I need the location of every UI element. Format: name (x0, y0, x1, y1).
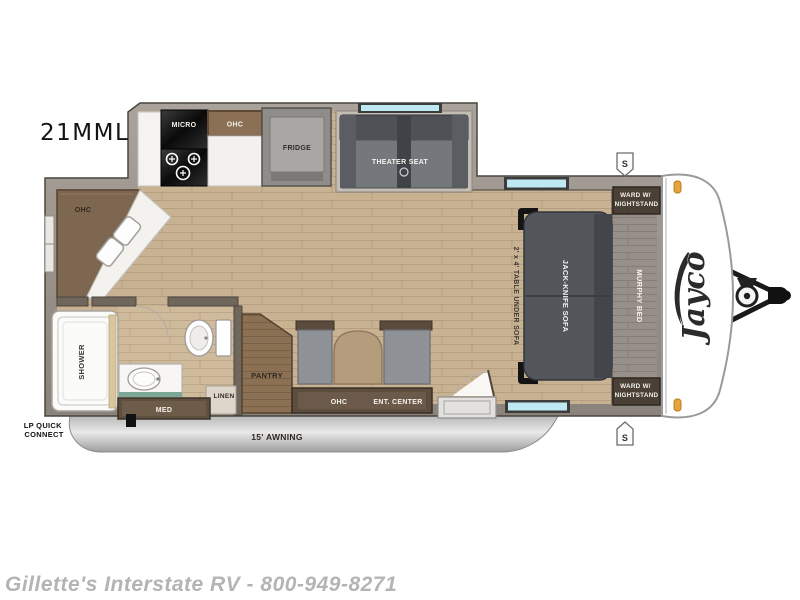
front-cap: Jayco (662, 175, 733, 418)
kitchen-ohc: OHC (208, 111, 262, 136)
ent-center-label: ENT. CENTER (373, 399, 422, 406)
shower: SHOWER (52, 311, 118, 411)
pantry-label: PANTRY (251, 371, 283, 380)
table-under-sofa-label: 2' x 4' TABLE UNDER SOFA (512, 247, 519, 346)
microwave (161, 110, 208, 149)
marker-light-top (674, 181, 681, 193)
window-front-top (504, 177, 569, 190)
hitch (732, 272, 791, 320)
jayco-logo-text: Jayco (677, 251, 712, 345)
window-front-bottom (505, 400, 570, 413)
floorplan-page: 15' AWNING MICRO OHC (0, 0, 800, 600)
speaker-bottom-label: S (622, 433, 628, 443)
ward-nightstand-top: WARD W/ NIGHTSTAND (613, 187, 660, 214)
toilet (185, 320, 231, 356)
floorplan-drawing: 15' AWNING MICRO OHC (0, 0, 800, 600)
dealer-footer: Gillette's Interstate RV - 800-949-8271 (5, 573, 397, 596)
vanity (119, 364, 182, 397)
model-title: 21MML (40, 120, 129, 146)
corner-ohc-label: OHC (75, 207, 91, 214)
kitchen: MICRO OHC FRIDGE (138, 108, 331, 186)
kitchen-counter (208, 136, 262, 186)
med-label: MED (156, 407, 172, 414)
ward-nightstand-bottom: WARD W/ NIGHTSTAND (613, 378, 660, 405)
awning: 15' AWNING (69, 416, 558, 452)
booth-table (334, 331, 382, 384)
cooktop (161, 149, 208, 186)
linen-label: LINEN (214, 393, 235, 400)
shower-label: SHOWER (77, 344, 86, 380)
murphy-floor (612, 190, 657, 404)
fridge: FRIDGE (262, 108, 331, 186)
booth-cushion-left (298, 330, 332, 384)
theater-console (397, 115, 411, 188)
baggage-door (45, 216, 54, 272)
jayco-logo: Jayco (675, 251, 712, 345)
microwave-label: MICRO (172, 122, 197, 129)
jack-knife-sofa-label: JACK-KNIFE SOFA (561, 260, 570, 333)
murphy-bed-label: MURPHY BED (635, 269, 644, 323)
kitchen-counter-strip (138, 112, 162, 186)
marker-light-bottom (674, 399, 681, 411)
kitchen-ohc-label: OHC (227, 122, 243, 129)
speaker-badge-bottom: S (617, 422, 633, 445)
theater-seat-slide: THEATER SEAT (336, 111, 472, 192)
theater-seat-label: THEATER SEAT (372, 159, 429, 166)
booth-cushion-right (384, 330, 430, 384)
ent-center-area: OHC ENT. CENTER (292, 321, 432, 413)
speaker-badge-top: S (617, 153, 633, 176)
ent-ohc-label: OHC (331, 399, 347, 406)
svg-text:LP QUICK CONNECT: LP QUICK CONNECT (24, 421, 65, 439)
fridge-label: FRIDGE (283, 145, 311, 152)
window-slide-top (358, 103, 442, 113)
speaker-top-label: S (622, 159, 628, 169)
awning-label: 15' AWNING (251, 432, 303, 442)
